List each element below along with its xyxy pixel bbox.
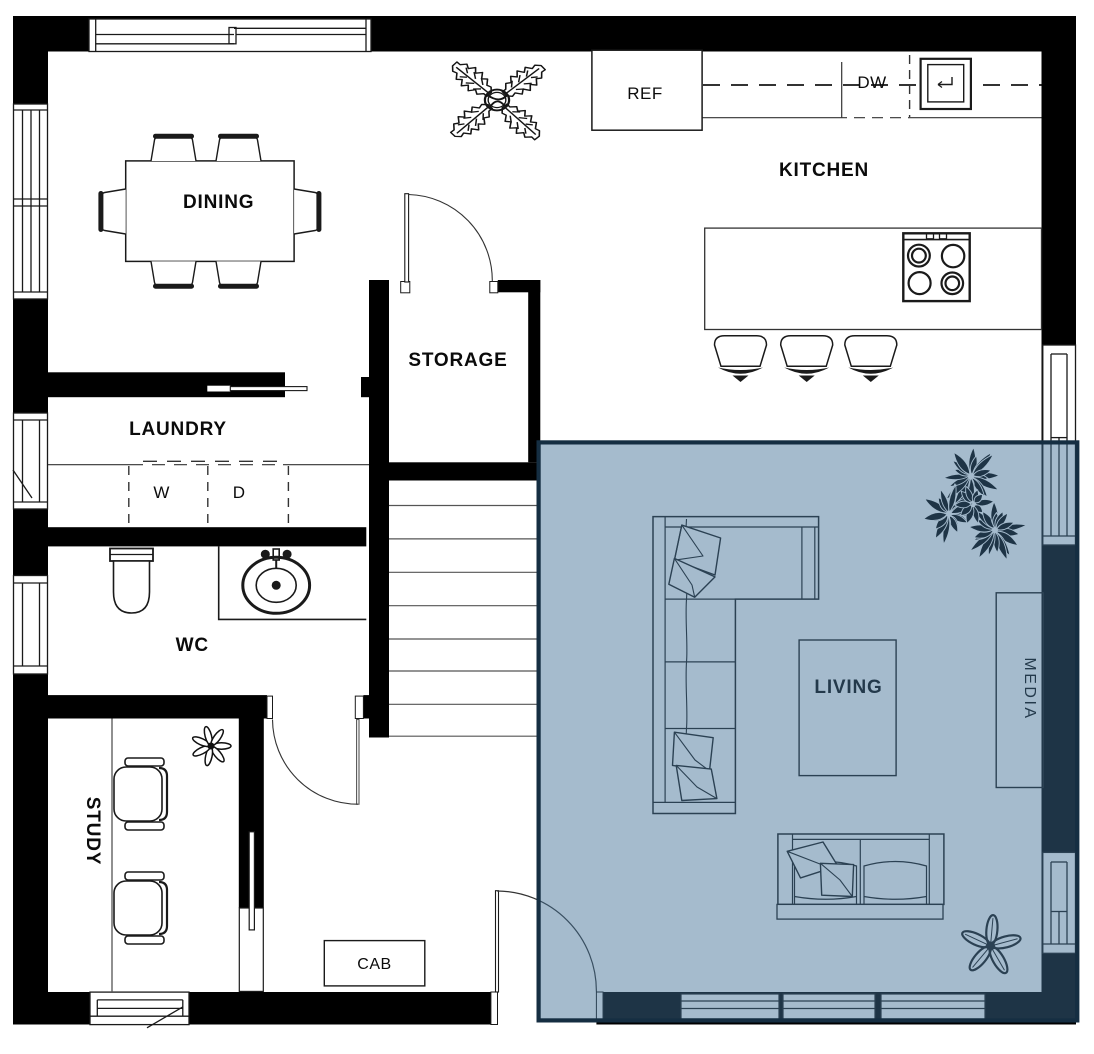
svg-text:STORAGE: STORAGE: [408, 350, 507, 371]
svg-text:W: W: [153, 483, 170, 502]
svg-text:REF: REF: [627, 84, 663, 103]
svg-text:WC: WC: [176, 635, 209, 656]
svg-text:KITCHEN: KITCHEN: [779, 160, 869, 181]
svg-text:DINING: DINING: [183, 192, 254, 213]
svg-text:D: D: [233, 483, 246, 502]
svg-text:DW: DW: [857, 73, 886, 92]
svg-text:CAB: CAB: [357, 956, 391, 973]
svg-text:LAUNDRY: LAUNDRY: [129, 419, 227, 440]
svg-text:STUDY: STUDY: [82, 797, 103, 865]
